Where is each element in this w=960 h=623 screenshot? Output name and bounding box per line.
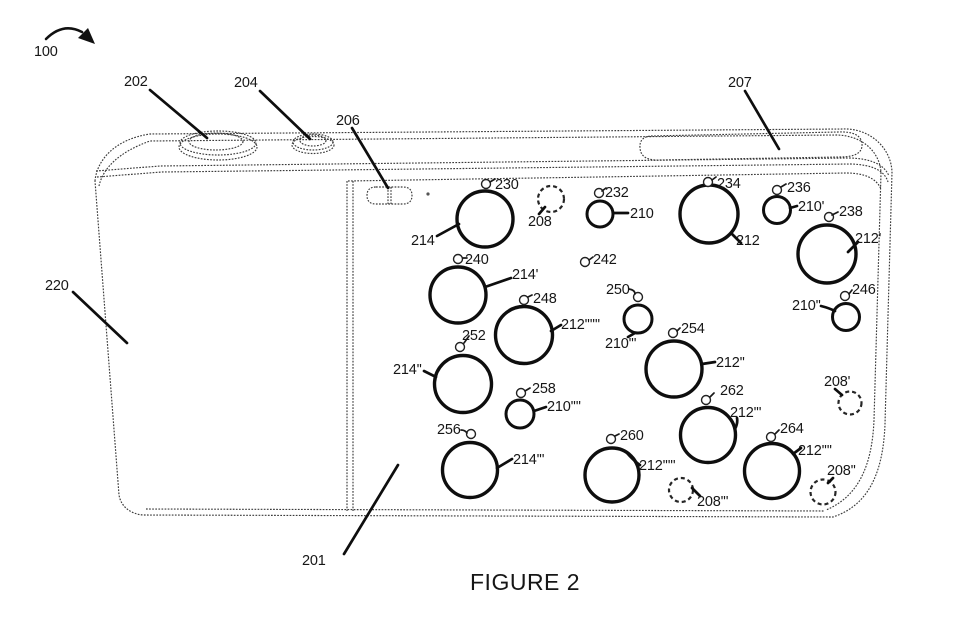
lens-214p2-circle (435, 356, 492, 413)
ref-208p2: 208'' (827, 463, 856, 479)
figure-2-drawing: 100 202 204 206 207 220 201 214 214' 214… (0, 0, 960, 623)
ref-201: 201 (302, 553, 326, 569)
slide-switch-divider (388, 187, 391, 204)
ref-236: 236 (787, 180, 811, 196)
ref-208p3: 208''' (697, 494, 729, 510)
ref-212p6: 212'''''' (561, 317, 600, 333)
opening-262-circle (702, 396, 711, 405)
opening-248-circle (520, 296, 529, 305)
leader-220 (73, 292, 127, 343)
lens-208p2-circle (811, 480, 836, 505)
top-window (640, 132, 862, 160)
leader-206 (352, 128, 388, 188)
ref-240: 240 (465, 252, 489, 268)
lens-212p6-circle (496, 307, 553, 364)
leader-207 (745, 91, 779, 149)
figure-caption: FIGURE 2 (470, 569, 580, 595)
leader-202 (150, 90, 207, 138)
ref-210p4: 210'''' (547, 399, 581, 415)
ref-210: 210 (630, 206, 654, 222)
ref-246: 246 (852, 282, 876, 298)
ref-210p3: 210''' (605, 336, 637, 352)
opening-256-circle (467, 430, 476, 439)
top-face-crease-2 (97, 164, 888, 182)
ref-262: 262 (720, 383, 744, 399)
ref-250: 250 (606, 282, 630, 298)
lens-210p1-circle (764, 197, 791, 224)
ref-260: 260 (620, 428, 644, 444)
lens-214p1-circle (430, 267, 486, 323)
patent-figure-page: 100 202 204 206 207 220 201 214 214' 214… (0, 0, 960, 623)
ref-254: 254 (681, 321, 705, 337)
ref-252: 252 (462, 328, 486, 344)
opening-238-circle (825, 213, 834, 222)
lens-214p3-circle (443, 443, 498, 498)
ref-258: 258 (532, 381, 556, 397)
opening-258-circle (517, 389, 526, 398)
opening-230-circle (482, 180, 491, 189)
lens-210p3-circle (624, 305, 652, 333)
opening-236-circle (773, 186, 782, 195)
ref-212: 212 (736, 233, 760, 249)
ref-212p2: 212'' (716, 355, 745, 371)
leader-204 (260, 91, 310, 139)
ref-232: 232 (605, 185, 629, 201)
ref-214: 214 (411, 233, 435, 249)
speck (426, 192, 429, 195)
ref-212p1: 212' (855, 231, 882, 247)
ref-212p4: 212'''' (798, 443, 832, 459)
lens-212p4-circle (745, 444, 800, 499)
ref-238: 238 (839, 204, 863, 220)
ref-242: 242 (593, 252, 617, 268)
lens-208-circle (538, 186, 564, 212)
opening-234-circle (704, 178, 713, 187)
top-face-crease-1 (96, 158, 889, 176)
camera-modules (430, 185, 862, 505)
opening-260-circle (607, 435, 616, 444)
lens-212p2-circle (646, 341, 702, 397)
ref-208p1: 208' (824, 374, 851, 390)
ref-212p5: 212''''' (639, 458, 676, 474)
shutter-button-rim (180, 131, 256, 155)
ref-207: 207 (728, 75, 752, 91)
ref-214p2: 214'' (393, 362, 422, 378)
ref-234: 234 (717, 176, 741, 192)
ref-256: 256 (437, 422, 461, 438)
ref-100: 100 (34, 44, 58, 60)
ref-220: 220 (45, 278, 69, 294)
opening-240-circle (454, 255, 463, 264)
ref-204: 204 (234, 75, 258, 91)
lens-210p4-circle (506, 400, 534, 428)
lens-210p2-circle (833, 304, 860, 331)
ref-214p1: 214' (512, 267, 539, 283)
opening-242-circle (581, 258, 590, 267)
lens-212p3-circle (681, 408, 736, 463)
ref-208: 208 (528, 214, 552, 230)
lens-214-circle (457, 191, 513, 247)
opening-264-circle (767, 433, 776, 442)
lens-210-circle (587, 201, 613, 227)
ref-214p3: 214''' (513, 452, 545, 468)
ref-230: 230 (495, 177, 519, 193)
opening-254-circle (669, 329, 678, 338)
lens-212p1-circle (798, 225, 856, 283)
ref-248: 248 (533, 291, 557, 307)
ref-264: 264 (780, 421, 804, 437)
lens-212-circle (680, 185, 738, 243)
ref-206: 206 (336, 113, 360, 129)
opening-246-circle (841, 292, 850, 301)
ref-210p2: 210'' (792, 298, 821, 314)
ref-202: 202 (124, 74, 148, 90)
arrow-100-shaft (46, 28, 82, 39)
slide-switch (367, 187, 412, 204)
ref-212p3: 212''' (730, 405, 762, 421)
leader-lines (46, 28, 858, 554)
top-controls (179, 131, 862, 204)
ref-210p1: 210' (798, 199, 825, 215)
lens-208p3-circle (669, 478, 693, 502)
